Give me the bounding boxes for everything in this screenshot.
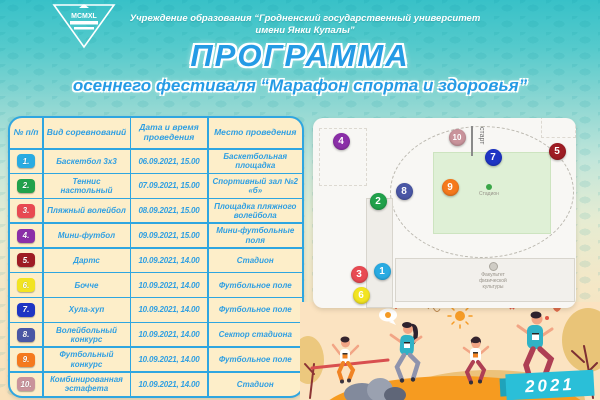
row-5-place-cell: Стадион (209, 249, 303, 272)
map-marker-6: 6 (353, 287, 370, 304)
start-label: старт (478, 127, 485, 144)
row-10-number-cell: 10. (10, 373, 42, 396)
svg-text:MCMXL: MCMXL (71, 13, 97, 20)
year-text: 2021 (524, 375, 576, 397)
map-marker-5: 5 (549, 143, 566, 160)
row-1-event-cell: Баскетбол 3х3 (44, 150, 130, 173)
row-1-place-cell: Баскетбольная площадка (209, 150, 303, 173)
row-8-event-cell: Волейбольный конкурс (44, 323, 130, 346)
row-3-place-cell: Площадка пляжного волейбола (209, 199, 303, 222)
row-1-datetime-cell: 06.09.2021, 15.00 (131, 150, 207, 173)
page-title: ПРОГРАММА (0, 38, 600, 74)
map-marker-7: 7 (485, 149, 502, 166)
faculty-label-text: Факультетфизическойкультуры (465, 272, 521, 290)
start-line (471, 126, 473, 156)
row-7-place-cell: Футбольное поле (209, 298, 303, 321)
runners-illustration: 2021 (300, 302, 600, 400)
map-marker-2: 2 (370, 193, 387, 210)
row-2-number-cell: 2. (10, 174, 42, 197)
map-marker-8: 8 (396, 183, 413, 200)
row-4-event-cell: Мини-футбол (44, 224, 130, 247)
stadium-dot-icon (486, 184, 492, 190)
row-number-badge: 7. (17, 303, 35, 317)
row-8-number-cell: 8. (10, 323, 42, 346)
page-subtitle: осеннего фестиваля “Марафон спорта и здо… (0, 76, 600, 96)
row-number-badge: 10. (17, 377, 35, 391)
row-number-badge: 8. (17, 328, 35, 342)
row-5-number-cell: 5. (10, 249, 42, 272)
row-10-place-cell: Стадион (209, 373, 303, 396)
row-6-datetime-cell: 10.09.2021, 14.00 (131, 273, 207, 296)
row-7-number-cell: 7. (10, 298, 42, 321)
map-marker-9: 9 (442, 179, 459, 196)
institution-name: Учреждение образования “Гродненский госу… (115, 13, 495, 38)
row-4-number-cell: 4. (10, 224, 42, 247)
row-5-datetime-cell: 10.09.2021, 14.00 (131, 249, 207, 272)
dot-decor (545, 316, 549, 320)
row-number-badge: 3. (17, 204, 35, 218)
row-4-datetime-cell: 09.09.2021, 15.00 (131, 224, 207, 247)
col-header-number: № п/п (10, 118, 42, 148)
row-number-badge: 1. (17, 154, 35, 168)
faculty-dot-icon (489, 262, 498, 271)
row-3-datetime-cell: 08.09.2021, 15.00 (131, 199, 207, 222)
map-building-left (366, 198, 393, 308)
year-banner: 2021 (499, 370, 594, 400)
col-header-event: Вид соревнований (44, 118, 130, 148)
map-marker-3: 3 (351, 266, 368, 283)
faculty-label: Факультетфизическойкультуры (465, 262, 521, 290)
row-9-number-cell: 9. (10, 348, 42, 371)
institution-line1: Учреждение образования “Гродненский госу… (115, 13, 495, 25)
col-header-datetime: Дата и время проведения (131, 118, 207, 148)
stadium-label: Стадион (467, 184, 511, 197)
row-3-number-cell: 3. (10, 199, 42, 222)
row-6-place-cell: Футбольное поле (209, 273, 303, 296)
row-7-event-cell: Хула-хуп (44, 298, 130, 321)
campus-map: старт Стадион Факультетфизическойкультур… (313, 118, 576, 308)
row-7-datetime-cell: 10.09.2021, 14.00 (131, 298, 207, 321)
row-4-place-cell: Мини-футбольные поля (209, 224, 303, 247)
row-number-badge: 9. (17, 353, 35, 367)
row-number-badge: 5. (17, 253, 35, 267)
stadium-label-text: Стадион (479, 191, 499, 197)
row-number-badge: 6. (17, 278, 35, 292)
row-6-number-cell: 6. (10, 273, 42, 296)
schedule-table: № п/п Вид соревнований Дата и время пров… (8, 116, 304, 398)
row-10-datetime-cell: 10.09.2021, 14.00 (131, 373, 207, 396)
poster-page: MCMXL Учреждение образования “Гродненски… (0, 0, 600, 400)
col-header-place: Место проведения (209, 118, 303, 148)
map-marker-1: 1 (374, 263, 391, 280)
map-marker-10: 10 (449, 129, 466, 146)
row-8-datetime-cell: 10.09.2021, 14.00 (131, 323, 207, 346)
row-9-place-cell: Футбольное поле (209, 348, 303, 371)
row-9-datetime-cell: 10.09.2021, 14.00 (131, 348, 207, 371)
row-1-number-cell: 1. (10, 150, 42, 173)
row-8-place-cell: Сектор стадиона (209, 323, 303, 346)
row-number-badge: 4. (17, 229, 35, 243)
map-building-outline-topright (541, 118, 576, 138)
row-number-badge: 2. (17, 179, 35, 193)
row-9-event-cell: Футбольный конкурс (44, 348, 130, 371)
row-2-event-cell: Теннис настольный (44, 174, 130, 197)
row-2-place-cell: Спортивный зал №2 «б» (209, 174, 303, 197)
row-2-datetime-cell: 07.09.2021, 15.00 (131, 174, 207, 197)
row-10-event-cell: Комбинированная эстафета (44, 373, 130, 396)
institution-line2: имени Янки Купалы” (115, 25, 495, 37)
row-5-event-cell: Дартс (44, 249, 130, 272)
map-marker-4: 4 (333, 133, 350, 150)
row-6-event-cell: Бочче (44, 273, 130, 296)
row-3-event-cell: Пляжный волейбол (44, 199, 130, 222)
schedule-grid: № п/п Вид соревнований Дата и время пров… (10, 118, 302, 396)
